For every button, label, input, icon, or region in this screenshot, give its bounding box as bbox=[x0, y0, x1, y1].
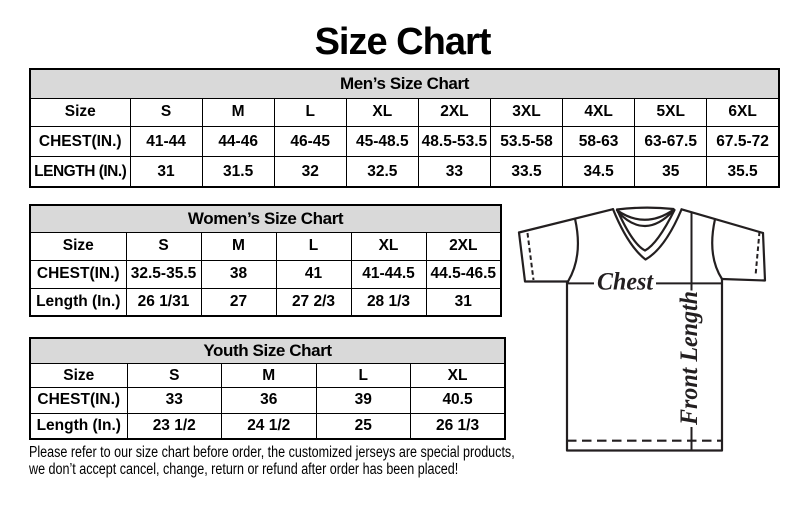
svg-text:Chest: Chest bbox=[597, 269, 654, 296]
svg-text:Front Length: Front Length bbox=[676, 291, 703, 426]
